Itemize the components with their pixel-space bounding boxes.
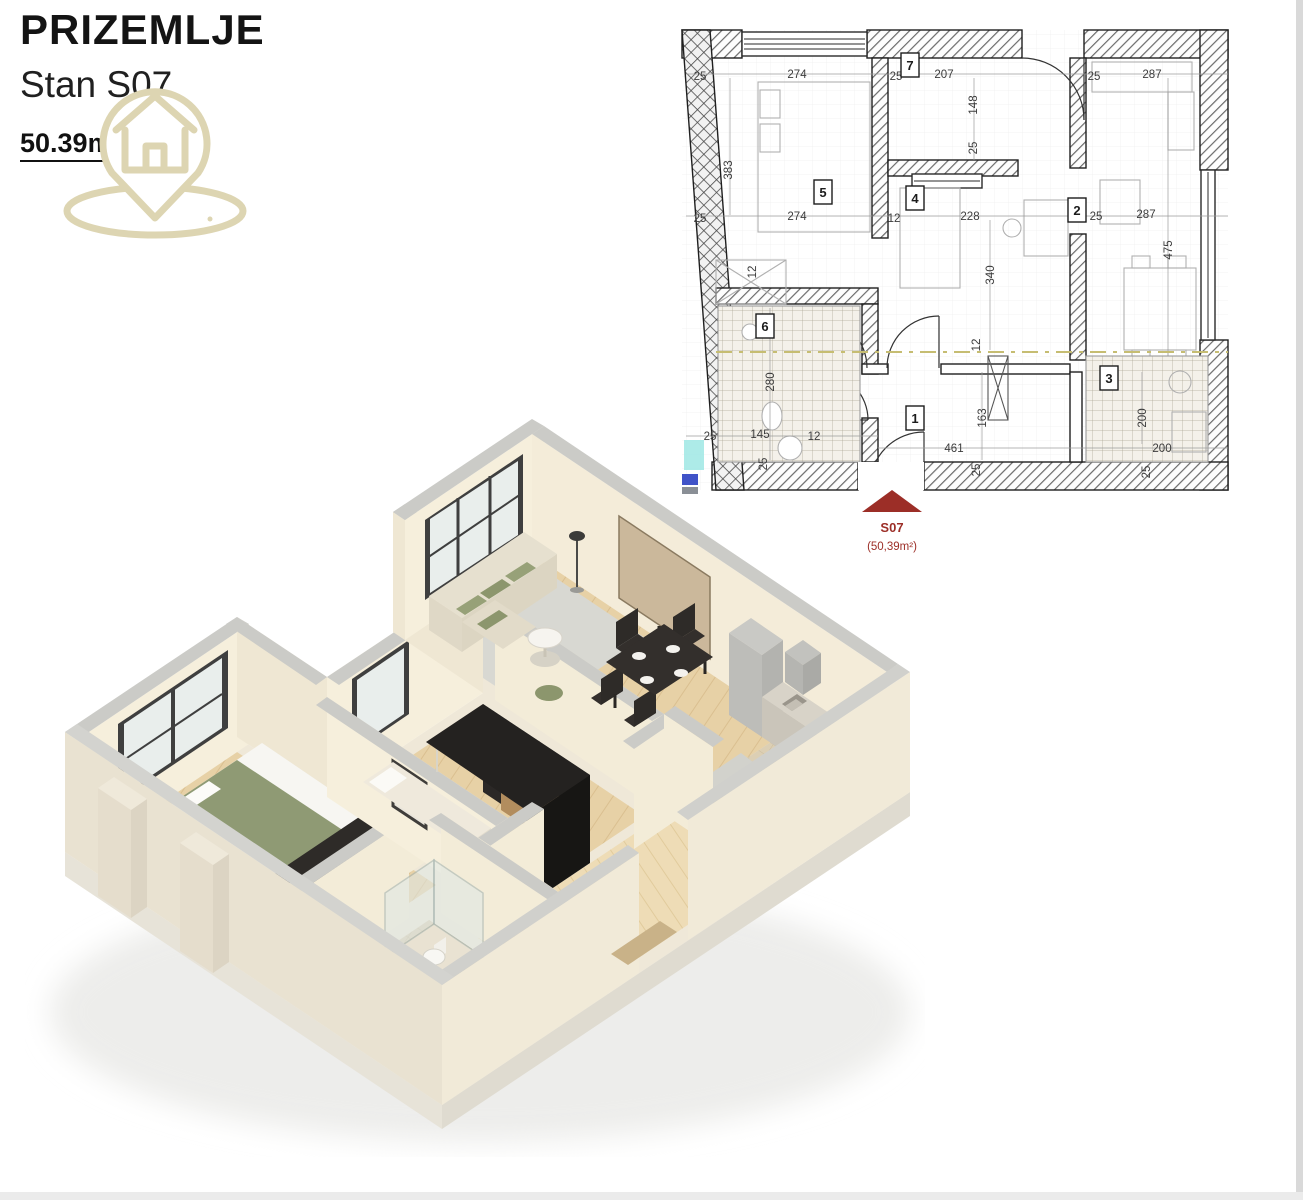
dimension-label: 280 — [765, 372, 777, 391]
dimension-label: 274 — [787, 69, 807, 81]
pin-outline — [103, 92, 207, 218]
plate — [666, 645, 680, 653]
dimension-label: 475 — [1163, 240, 1175, 259]
page-title: PRIZEMLJE — [20, 6, 265, 54]
dimension-label: 200 — [1152, 443, 1171, 455]
dimension-label: 25 — [694, 71, 707, 83]
coffee-table — [528, 628, 562, 648]
dimension-label: 25 — [1088, 71, 1101, 83]
dimension-label: 287 — [1136, 209, 1155, 221]
room-marker-5: 5 — [819, 185, 826, 200]
dimension-label: 25 — [971, 464, 983, 477]
dimension-label: 461 — [944, 443, 963, 455]
dimension-label: 25 — [968, 142, 980, 155]
dimension-label: 228 — [960, 211, 979, 223]
dimension-label: 12 — [888, 213, 901, 225]
room-marker-3: 3 — [1105, 371, 1112, 386]
room-marker-7: 7 — [906, 58, 913, 73]
dimension-label: 274 — [787, 211, 807, 223]
ring-dot — [208, 217, 213, 222]
bottom-edge-strip — [0, 1192, 1303, 1200]
dimension-label: 207 — [934, 69, 953, 81]
right-edge-strip — [1296, 0, 1303, 1200]
dimension-label: 25 — [1141, 466, 1153, 479]
room-marker-6: 6 — [761, 319, 768, 334]
dimension-label: 148 — [968, 95, 980, 114]
wall-fin — [98, 788, 131, 918]
room-marker-4: 4 — [911, 191, 919, 206]
plate — [674, 669, 688, 677]
dimension-label: 25 — [694, 213, 707, 225]
render-3d — [25, 412, 925, 1157]
dimension-label: 25 — [1090, 211, 1103, 223]
dimension-label: 163 — [977, 408, 989, 427]
plate — [640, 676, 654, 684]
room-marker-2: 2 — [1073, 203, 1080, 218]
dimension-label: 287 — [1142, 69, 1161, 81]
dimension-label: 340 — [985, 265, 997, 284]
dimension-label: 383 — [723, 160, 735, 179]
plate — [632, 652, 646, 660]
house-pin-icon — [50, 78, 260, 243]
dimension-label: 12 — [971, 339, 983, 352]
wall-fin — [180, 843, 213, 973]
dimension-label: 12 — [747, 266, 759, 279]
dimension-label: 200 — [1137, 408, 1149, 427]
green-pouf — [535, 685, 563, 701]
